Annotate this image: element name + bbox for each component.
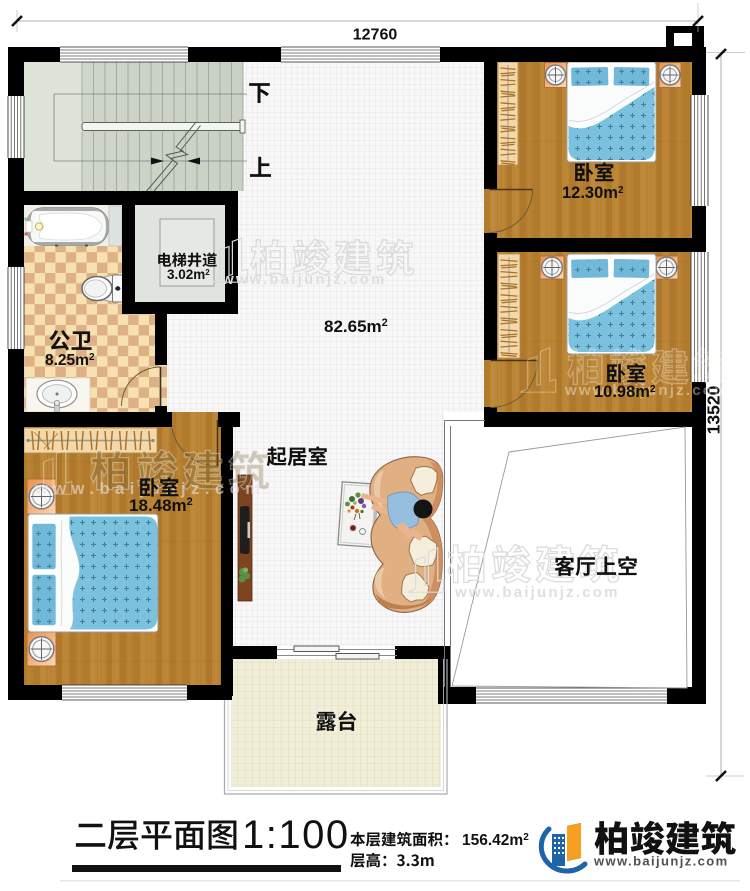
svg-text:www.baijunjz.com: www.baijunjz.com — [454, 584, 620, 601]
svg-text:18.48m2: 18.48m2 — [129, 496, 193, 515]
svg-text:156.42m2: 156.42m2 — [462, 832, 529, 849]
svg-text:www.baijunjz.com: www.baijunjz.com — [593, 854, 729, 869]
svg-text:8.25m2: 8.25m2 — [45, 352, 95, 369]
svg-text:1:100: 1:100 — [242, 813, 350, 857]
svg-text:12760: 12760 — [353, 27, 398, 44]
svg-text:82.65m2: 82.65m2 — [324, 317, 388, 336]
svg-text:10.98m2: 10.98m2 — [594, 383, 656, 401]
svg-text:12.30m2: 12.30m2 — [562, 184, 624, 202]
svg-text:www.baijunjz.com: www.baijunjz.com — [221, 271, 387, 288]
svg-text:3.02m2: 3.02m2 — [167, 267, 210, 282]
